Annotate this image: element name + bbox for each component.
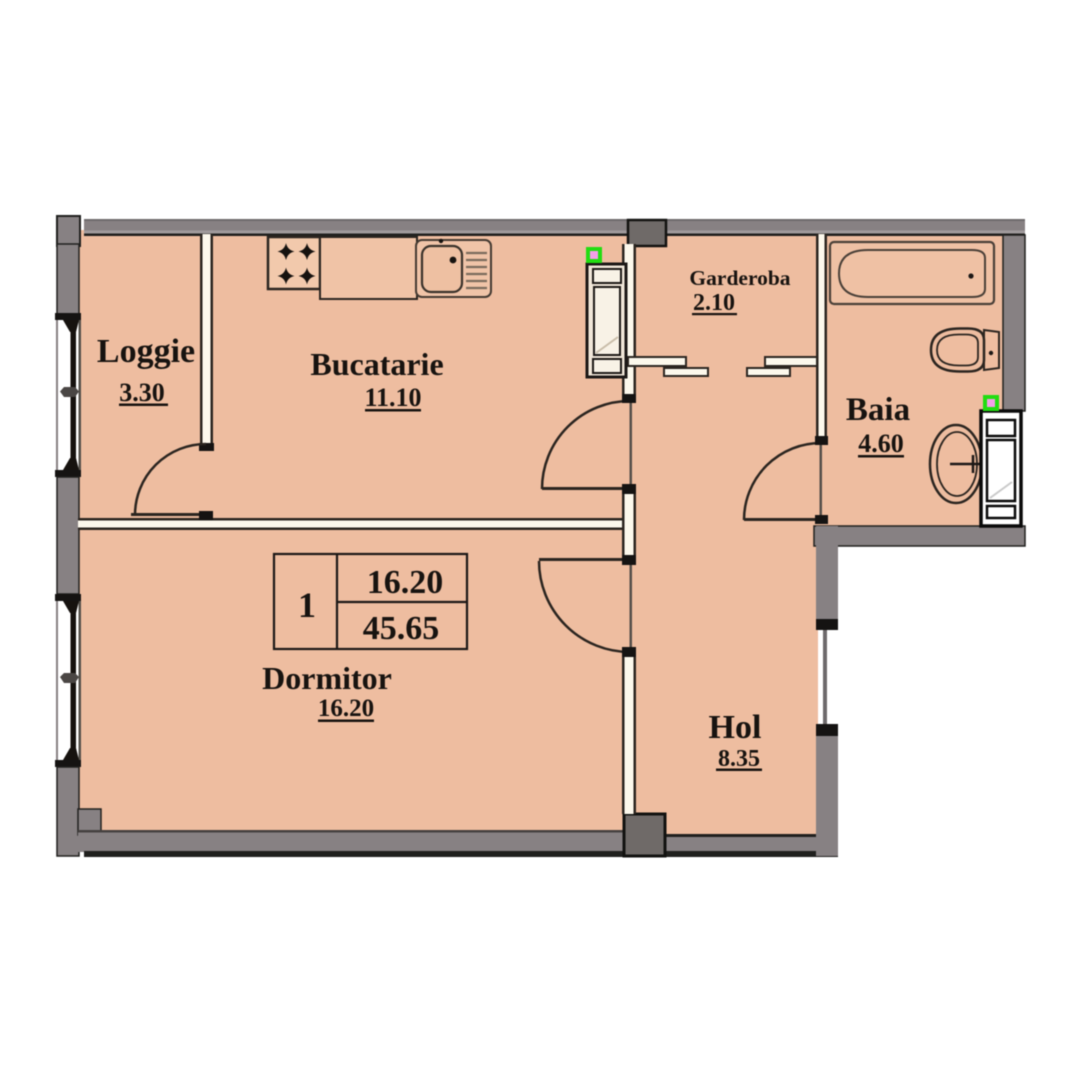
svg-text:2.10: 2.10 (693, 290, 735, 316)
svg-text:16.20: 16.20 (367, 564, 444, 601)
svg-text:3.30: 3.30 (119, 378, 165, 407)
svg-text:45.65: 45.65 (363, 610, 440, 647)
svg-text:Dormitor: Dormitor (262, 660, 392, 696)
svg-text:8.35: 8.35 (718, 746, 760, 772)
svg-text:Loggie: Loggie (97, 333, 195, 370)
svg-text:Bucatarie: Bucatarie (310, 346, 443, 382)
svg-text:16.20: 16.20 (318, 695, 374, 722)
svg-text:Baia: Baia (846, 392, 910, 428)
svg-text:1: 1 (298, 585, 316, 625)
svg-text:4.60: 4.60 (858, 429, 904, 458)
svg-text:11.10: 11.10 (364, 383, 421, 412)
svg-text:Hol: Hol (709, 709, 762, 746)
svg-text:Garderoba: Garderoba (689, 266, 790, 290)
